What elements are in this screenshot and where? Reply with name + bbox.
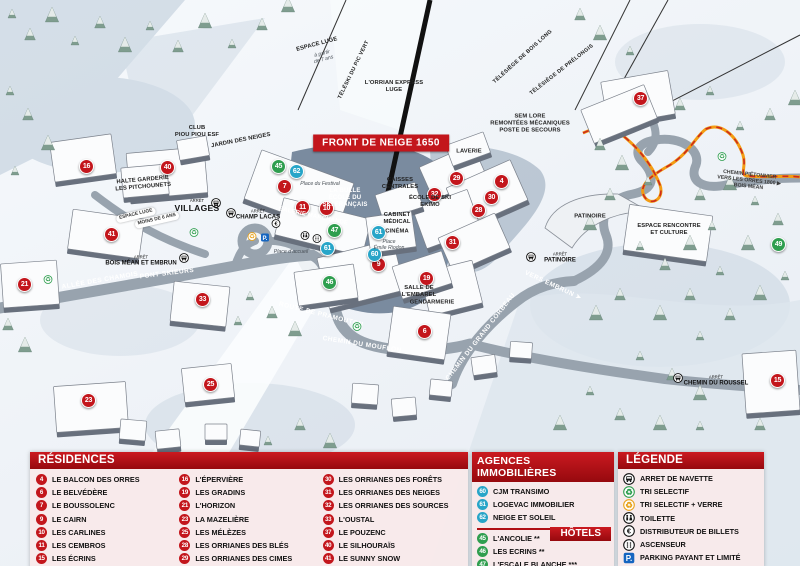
map-label: VERS EMBRUN ➤	[523, 269, 582, 302]
legend-item: 40LE SILHOURAÏS	[323, 539, 462, 552]
legende-list: ARRET DE NAVETTE♻TRI SELECTIF♻TRI SELECT…	[618, 469, 764, 566]
map-label: SEM LOREREMONTÉES MÉCANIQUESPOSTE DE SEC…	[490, 114, 570, 135]
legende-item: ♻TRI SELECTIF + VERRE	[623, 498, 759, 511]
legend-item: 16L'ÉPERVIÈRE	[179, 473, 318, 486]
legend-item: 29LES ORRIANES DES CIMES	[179, 552, 318, 565]
legend-item: 61LOGEVAC IMMOBILIER	[477, 498, 609, 511]
legend-item-label: LE BOUSSOLENC	[52, 501, 115, 510]
legend-badge-60: 60	[477, 486, 488, 497]
legend-item: 33L'OUSTAL	[323, 513, 462, 526]
legende-item: ♻TRI SELECTIF	[623, 485, 759, 498]
legend-badge-10: 10	[36, 527, 47, 538]
legend-item: 9LE CAIRN	[36, 513, 175, 526]
legend-badge-4: 4	[36, 474, 47, 485]
legend-badge-31: 31	[323, 487, 334, 498]
legend-item-label: CJM TRANSIMO	[493, 487, 549, 496]
parking-icon: P.	[261, 229, 270, 247]
map-label: ESPACE RENCONTREET CULTURE	[637, 223, 700, 237]
map-label: PATINOIRE	[574, 214, 606, 221]
legend-item: 37LE POUZENC	[323, 526, 462, 539]
legend-item-label: LES ORRIANES DES BLÉS	[195, 541, 288, 550]
map-label: ÉCOLE DE SKIEKIMO	[409, 195, 451, 209]
legend-badge-30: 30	[323, 474, 334, 485]
map-label: Place d'accueil	[274, 249, 308, 255]
legend-item: 46LES ECRINS **	[477, 545, 609, 558]
bus-stop-icon	[526, 249, 536, 267]
map-marker-4: 4	[494, 174, 509, 189]
legend-item: 6LE BELVÉDÈRE	[36, 486, 175, 499]
svg-text:♻: ♻	[45, 277, 51, 284]
euro-icon: €	[623, 525, 635, 537]
legende-item: €DISTRIBUTEUR DE BILLETS	[623, 525, 759, 538]
legende-item: ASCENSEUR	[623, 538, 759, 551]
bus-stop-label: ARRÊTPATINOIRE	[544, 252, 576, 263]
recycle-green-icon: ♻	[623, 486, 635, 498]
map-label: CABINETMÉDICAL	[383, 212, 410, 226]
legend-badge-32: 32	[323, 500, 334, 511]
svg-text:♻: ♻	[625, 487, 633, 497]
agences-list: 60CJM TRANSIMO61LOGEVAC IMMOBILIER62NEIG…	[477, 485, 609, 525]
svg-text:♻: ♻	[719, 154, 725, 161]
recycle-green-icon: ♻	[718, 148, 727, 166]
bus-stop-label: ARRÊTBOIS MÉAN ET EMBRUN	[105, 255, 176, 266]
legende-item-label: TRI SELECTIF	[640, 487, 689, 496]
legend-item: 30LES ORRIANES DES FORÊTS	[323, 473, 462, 486]
map-marker-46: 46	[322, 275, 337, 290]
legend-badge-25: 25	[179, 527, 190, 538]
map-label: PONT SKIEURS	[139, 267, 194, 281]
residences-panel-title: RÉSIDENCES	[30, 452, 468, 469]
legend-item: 41LE SUNNY SNOW	[323, 552, 462, 565]
map-marker-41: 41	[104, 227, 119, 242]
legend-item: 62NEIGE ET SOLEIL	[477, 511, 609, 524]
legend-badge-16: 16	[179, 474, 190, 485]
map-label: CAISSESCENTRALES	[382, 177, 418, 191]
map-marker-62: 62	[289, 164, 304, 179]
legend-badge-37: 37	[323, 527, 334, 538]
map-label: JARDIN DES NEIGES	[211, 132, 272, 150]
legend-badge-29: 29	[179, 553, 190, 564]
map-marker-30: 30	[484, 190, 499, 205]
front-de-neige-banner: FRONT DE NEIGE 1650	[313, 135, 449, 152]
legend-item-label: L'OUSTAL	[339, 515, 375, 524]
hotels-divider: HÔTELS	[477, 528, 609, 530]
recycle-green-icon: ♻	[44, 271, 53, 289]
map-label: ALLÉE DES CHAMOIS	[61, 270, 139, 291]
legend-badge-62: 62	[477, 512, 488, 523]
map-label: SALLE DEL'EMBAREL	[402, 285, 436, 299]
legende-item-label: PARKING PAYANT ET LIMITÉ	[640, 553, 741, 562]
elevator-icon	[313, 230, 322, 248]
legend-item-label: L'HORIZON	[195, 501, 235, 510]
map-marker-33: 33	[195, 292, 210, 307]
map-marker-49: 49	[771, 237, 786, 252]
legend-badge-46: 46	[477, 546, 488, 557]
map-label: ROUTE DE PRAMOUTON	[278, 301, 364, 330]
legend-badge-15: 15	[36, 553, 47, 564]
map-marker-15: 15	[770, 373, 785, 388]
map-marker-61: 61	[320, 241, 335, 256]
legend-item-label: LE BELVÉDÈRE	[52, 488, 107, 497]
legend-badge-40: 40	[323, 540, 334, 551]
legend-badge-28: 28	[179, 540, 190, 551]
resort-map: FRONT DE NEIGE 1650 16404121332325711109…	[0, 0, 800, 566]
legend-item: 32LES ORRIANES DES SOURCES	[323, 499, 462, 512]
toilet-icon	[623, 512, 635, 524]
recycle-yellow-icon: ♻	[248, 228, 257, 246]
map-label: Place du Festival	[300, 181, 340, 187]
map-marker-31: 31	[445, 235, 460, 250]
legend-item-label: LES ECRINS **	[493, 547, 545, 556]
legend-item: 19LES GRADINS	[179, 486, 318, 499]
legend-badge-21: 21	[179, 500, 190, 511]
legend-item-label: LES GRADINS	[195, 488, 245, 497]
legend-badge-6: 6	[36, 487, 47, 498]
map-marker-16: 16	[79, 159, 94, 174]
legende-panel: LÉGENDE ARRET DE NAVETTE♻TRI SELECTIF♻TR…	[618, 452, 764, 566]
legend-badge-45: 45	[477, 533, 488, 544]
legend-item-label: LES CEMBROS	[52, 541, 106, 550]
legend-item: 7LE BOUSSOLENC	[36, 499, 175, 512]
map-label: CHEMIN PIÉTONNIERVERS LES ORRES 1800 ▶BO…	[716, 168, 782, 193]
legend-item: 10LES CARLINES	[36, 526, 175, 539]
legende-item-label: ARRET DE NAVETTE	[640, 474, 713, 483]
svg-text:♻: ♻	[625, 500, 633, 510]
legende-panel-title: LÉGENDE	[618, 452, 764, 469]
recycle-green-icon: ♻	[190, 224, 199, 242]
svg-text:P.: P.	[626, 554, 633, 563]
map-label: TÉLÉSIÈGE DE PRÉLONGIS	[529, 43, 595, 97]
map-marker-37: 37	[633, 91, 648, 106]
legend-item-label: LE BALCON DES ORRES	[52, 475, 140, 484]
legend-item: 28LES ORRIANES DES BLÉS	[179, 539, 318, 552]
legend-item: 11LES CEMBROS	[36, 539, 175, 552]
map-marker-25: 25	[203, 377, 218, 392]
map-marker-45: 45	[271, 159, 286, 174]
legend-item-label: L'ANCOLIE **	[493, 534, 540, 543]
legende-item-label: TRI SELECTIF + VERRE	[640, 500, 723, 509]
map-marker-29: 29	[449, 171, 464, 186]
bus-stop-icon	[226, 205, 236, 223]
legend-item-label: LOGEVAC IMMOBILIER	[493, 500, 574, 509]
bus-stop-icon	[179, 250, 189, 268]
agences-hotels-panel: AGENCES IMMOBILIÈRES 60CJM TRANSIMO61LOG…	[472, 452, 614, 566]
map-marker-21: 21	[17, 277, 32, 292]
euro-icon: €	[272, 215, 281, 233]
svg-text:♻: ♻	[191, 230, 197, 237]
legend-badge-61: 61	[477, 499, 488, 510]
map-label: CHEMIN DU GRAND CORBEAU	[444, 292, 517, 382]
toilet-icon	[301, 227, 310, 245]
legend-item-label: NEIGE ET SOLEIL	[493, 513, 555, 522]
legende-item: TOILETTE	[623, 512, 759, 525]
map-label: GENDARMERIE	[410, 300, 455, 307]
residences-panel: RÉSIDENCES 4LE BALCON DES ORRES6LE BELVÉ…	[30, 452, 468, 566]
legend-item-label: LES MÉLÈZES	[195, 528, 246, 537]
legend-badge-33: 33	[323, 514, 334, 525]
legend-item-label: L'ÉPERVIÈRE	[195, 475, 243, 484]
legend-item: 15LES ÉCRINS	[36, 552, 175, 565]
legend-item-label: LES ORRIANES DES CIMES	[195, 554, 292, 563]
map-marker-23: 23	[81, 393, 96, 408]
map-marker-7: 7	[277, 179, 292, 194]
svg-text:P.: P.	[263, 236, 268, 242]
legend-badge-19: 19	[179, 487, 190, 498]
legend-item-label: LA MAZELIÈRE	[195, 515, 249, 524]
legend-item: 31LES ORRIANES DES NEIGES	[323, 486, 462, 499]
legende-item-label: DISTRIBUTEUR DE BILLETS	[640, 527, 739, 536]
bus-stop-label: ARRÊTCHEMIN DU ROUSSEL	[684, 375, 749, 386]
bus-stop-label: ARRÊTVILLAGES	[175, 199, 220, 213]
legend-item-label: L'ESCALE BLANCHE ***	[493, 560, 577, 566]
legend-item: 21L'HORIZON	[179, 499, 318, 512]
map-label: LA BULLEÉCOLE DUSKI FRANÇAIS	[322, 188, 367, 210]
agences-panel-title: AGENCES IMMOBILIÈRES	[472, 452, 614, 482]
map-marker-61: 61	[371, 225, 386, 240]
legende-item-label: TOILETTE	[640, 514, 675, 523]
recycle-green-icon: ♻	[353, 318, 362, 336]
map-label: CLUBPIOU PIOU ESF	[175, 125, 219, 139]
map-label: CINÉMA	[385, 229, 408, 236]
svg-text:♻: ♻	[354, 324, 360, 331]
bus-icon	[623, 473, 635, 485]
map-label: à partirde 7 ans	[312, 48, 334, 65]
legend-item: 25LES MÉLÈZES	[179, 526, 318, 539]
map-marker-6: 6	[417, 324, 432, 339]
legend-badge-9: 9	[36, 514, 47, 525]
legend-item-label: LES CARLINES	[52, 528, 106, 537]
legend-badge-7: 7	[36, 500, 47, 511]
legend-item-label: LES ORRIANES DES FORÊTS	[339, 475, 442, 484]
legende-item: P.PARKING PAYANT ET LIMITÉ	[623, 551, 759, 564]
legend-item-label: LES ORRIANES DES NEIGES	[339, 488, 440, 497]
bus-stop-icon	[673, 370, 683, 388]
residences-list: 4LE BALCON DES ORRES6LE BELVÉDÈRE7LE BOU…	[30, 469, 468, 566]
legend-item-label: LES ORRIANES DES SOURCES	[339, 501, 449, 510]
map-marker-40: 40	[160, 160, 175, 175]
legend-item: 23LA MAZELIÈRE	[179, 513, 318, 526]
legend-badge-41: 41	[323, 553, 334, 564]
legende-item-label: ASCENSEUR	[640, 540, 686, 549]
map-label: LAVERIE	[456, 149, 481, 156]
legend-item: 4LE BALCON DES ORRES	[36, 473, 175, 486]
legend-item-label: LE POUZENC	[339, 528, 386, 537]
map-label: TÉLÉSIÈGE DE BOIS LONG	[492, 29, 554, 86]
legend-item-label: LE CAIRN	[52, 515, 86, 524]
legend-item-label: LE SUNNY SNOW	[339, 554, 401, 563]
legend-item: 60CJM TRANSIMO	[477, 485, 609, 498]
elevator-icon	[623, 539, 635, 551]
legend-badge-47: 47	[477, 559, 488, 566]
legend-item: 47L'ESCALE BLANCHE ***	[477, 558, 609, 566]
map-label: L'ORRIAN EXPRESSLUGE	[365, 80, 423, 94]
recycle-yellow-icon: ♻	[623, 499, 635, 511]
legend-item-label: LE SILHOURAÏS	[339, 541, 395, 550]
map-label: HALTE GARDERIELES PITCHOUNETS	[115, 175, 172, 194]
legende-item: ARRET DE NAVETTE	[623, 472, 759, 485]
legend-item-label: LES ÉCRINS	[52, 554, 96, 563]
parking-icon: P.	[623, 552, 635, 564]
hotels-panel-title: HÔTELS	[550, 527, 611, 541]
legend-badge-11: 11	[36, 540, 47, 551]
svg-text:♻: ♻	[249, 234, 255, 241]
map-label: CHEMIN DU MOUFLON	[322, 335, 402, 355]
legend-badge-23: 23	[179, 514, 190, 525]
map-marker-19: 19	[419, 271, 434, 286]
map-marker-28: 28	[471, 203, 486, 218]
map-label: PlaceÉmile Riodon	[374, 239, 405, 251]
